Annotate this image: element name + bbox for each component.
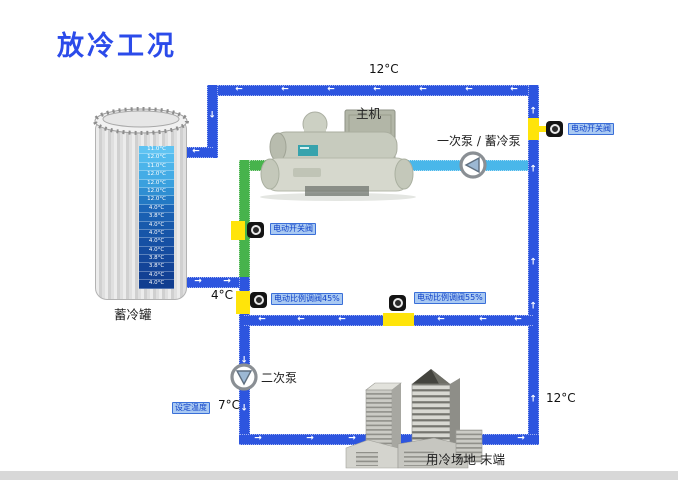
- flow-arrow-icon: →: [223, 278, 231, 287]
- tank-temp-row: 3.8°C: [139, 213, 174, 221]
- valve-switch-right-stem: [539, 126, 546, 132]
- tank-temp-row: 12.0°C: [139, 171, 174, 179]
- primary-pump-icon[interactable]: [458, 150, 488, 180]
- flow-arrow-icon: →: [517, 435, 525, 444]
- flow-arrow-icon: ↑: [529, 396, 537, 405]
- temp-supply: 7°C: [218, 398, 240, 412]
- flow-arrow-icon: ←: [419, 86, 427, 95]
- valve-prop-45-actuator-icon[interactable]: [250, 292, 267, 308]
- flow-arrow-icon: ↓: [240, 405, 248, 414]
- temp-top-return: 12°C: [369, 62, 399, 76]
- valve-switch-main-label: 电动开关阀: [270, 223, 316, 235]
- flow-arrow-icon: ←: [327, 86, 335, 95]
- valve-prop-45[interactable]: [236, 291, 250, 314]
- valve-switch-right-label: 电动开关阀: [568, 123, 614, 135]
- tank-temp-row: 4.0°C: [139, 222, 174, 230]
- tank-temp-row: 12.0°C: [139, 188, 174, 196]
- tank-temp-row: 12.0°C: [139, 154, 174, 162]
- flow-arrow-icon: ↑: [529, 303, 537, 312]
- tank-temperature-column: 11.0°C12.0°C11.0°C12.0°C12.0°C12.0°C12.0…: [139, 146, 174, 289]
- set-temp-badge: 设定温度: [172, 402, 210, 414]
- cooling-diagram: 放冷工况 12°C 4°C 7°C 12°C 设定温度 电动开关阀 电动比例调阀…: [0, 0, 678, 480]
- valve-prop-55[interactable]: [383, 313, 414, 326]
- flow-arrow-icon: →: [306, 435, 314, 444]
- flow-arrow-icon: →: [194, 278, 202, 287]
- chiller-illustration: [253, 98, 428, 203]
- tank-temp-row: 4.0°C: [139, 238, 174, 246]
- pipe-chiller-in-green-v: [239, 160, 250, 278]
- flow-arrow-icon: ↑: [529, 108, 537, 117]
- flow-arrow-icon: ←: [373, 86, 381, 95]
- tank-temp-row: 4.0°C: [139, 230, 174, 238]
- valve-switch-right[interactable]: [528, 118, 539, 140]
- tank-temp-row: 4.0°C: [139, 247, 174, 255]
- footer-bar: [0, 471, 678, 480]
- flow-arrow-icon: ←: [258, 316, 266, 325]
- valve-prop-55-actuator-icon[interactable]: [389, 295, 406, 311]
- tank-temp-row: 12.0°C: [139, 196, 174, 204]
- tank-label: 蓄冷罐: [114, 304, 152, 323]
- tank-temp-row: 4.0°C: [139, 272, 174, 280]
- flow-arrow-icon: ←: [514, 316, 522, 325]
- temp-right-return: 12°C: [546, 391, 576, 405]
- tank-top-cap: [93, 103, 189, 139]
- flow-arrow-icon: ←: [437, 316, 445, 325]
- tank-temp-row: 4.0°C: [139, 205, 174, 213]
- flow-arrow-icon: ←: [192, 148, 200, 157]
- flow-arrow-icon: ↑: [529, 166, 537, 175]
- flow-arrow-icon: ↓: [208, 112, 216, 121]
- secondary-pump-label: 二次泵: [261, 369, 297, 386]
- tank-temp-row: 11.0°C: [139, 146, 174, 154]
- end-user-label: 用冷场地 末端: [426, 449, 505, 468]
- flow-arrow-icon: ←: [338, 316, 346, 325]
- tank-temp-row: 12.0°C: [139, 180, 174, 188]
- tank-temp-row: 3.8°C: [139, 263, 174, 271]
- page-title: 放冷工况: [57, 24, 177, 63]
- flow-arrow-icon: →: [254, 435, 262, 444]
- tank-temp-row: 4.0°C: [139, 280, 174, 288]
- tank-temp-row: 11.0°C: [139, 163, 174, 171]
- flow-arrow-icon: ←: [235, 86, 243, 95]
- flow-arrow-icon: ←: [297, 316, 305, 325]
- secondary-pump-icon[interactable]: [229, 362, 259, 392]
- valve-switch-main[interactable]: [231, 221, 245, 240]
- tank-temp-row: 3.8°C: [139, 255, 174, 263]
- flow-arrow-icon: ↑: [529, 259, 537, 268]
- flow-arrow-icon: ←: [510, 86, 518, 95]
- valve-prop-55-label: 电动比例调阀55%: [414, 292, 486, 304]
- temp-tank-outlet: 4°C: [211, 288, 233, 302]
- flow-arrow-icon: ←: [479, 316, 487, 325]
- valve-switch-main-actuator-icon[interactable]: [247, 222, 264, 238]
- valve-switch-right-actuator-icon[interactable]: [546, 121, 563, 137]
- primary-pump-label: 一次泵 / 蓄冷泵: [437, 132, 521, 149]
- valve-prop-45-label: 电动比例调阀45%: [271, 293, 343, 305]
- flow-arrow-icon: ←: [281, 86, 289, 95]
- flow-arrow-icon: ←: [465, 86, 473, 95]
- chiller-label: 主机: [356, 103, 381, 122]
